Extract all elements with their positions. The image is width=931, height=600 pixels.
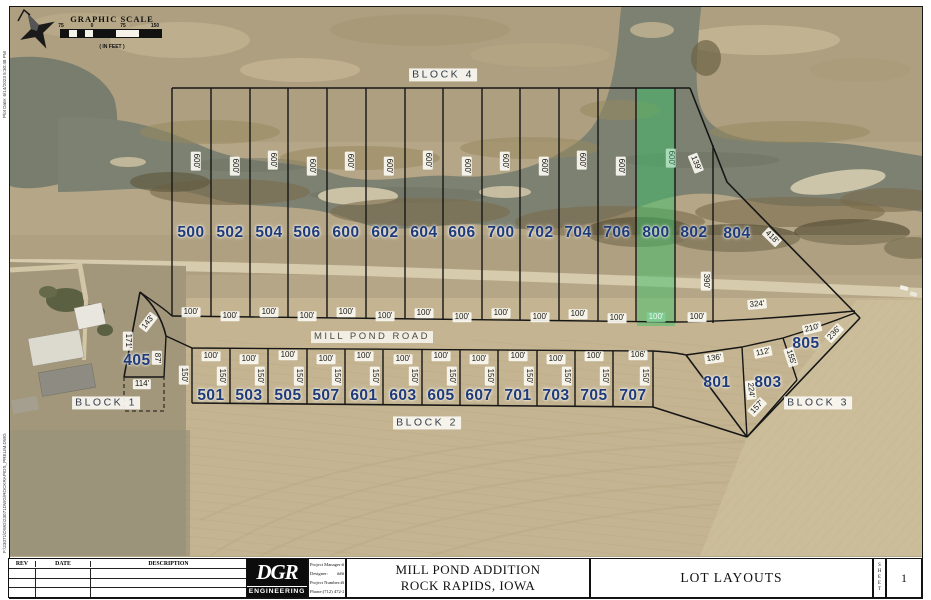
lot-number: 606 (448, 224, 475, 242)
dim-label: 100' (202, 351, 221, 361)
lot-number: 603 (389, 387, 416, 405)
dim-label: 171' (123, 332, 133, 351)
info-value: ### (337, 571, 344, 576)
project-title: MILL POND ADDITION ROCK RAPIDS, IOWA (346, 558, 590, 598)
dim-label: 100' (260, 307, 279, 317)
revision-col-header: REV (9, 561, 36, 567)
plat-sheet: GRAPHIC SCALE 75 0 75 150 ( IN FEET ) Pl… (0, 0, 931, 600)
dim-label: 150' (409, 367, 419, 386)
dim-label: 100' (492, 308, 511, 318)
lot-number: 702 (526, 224, 553, 242)
block-1-label: BLOCK 1 (72, 396, 140, 409)
dim-label: 600' (268, 151, 278, 170)
project-info: Project Manager:### Designer:### Project… (308, 558, 346, 598)
dim-label: 100' (182, 307, 201, 317)
dim-label: 100' (355, 351, 374, 361)
aerial-terrain (10, 0, 931, 557)
lot-number: 706 (603, 224, 630, 242)
info-value: ###### (341, 580, 345, 585)
sheet-title-text: LOT LAYOUTS (680, 570, 782, 586)
dim-label: 600' (384, 157, 394, 176)
info-value: (712) 472-2531 (323, 589, 344, 594)
dim-label: 100' (298, 311, 317, 321)
dim-label: 100' (337, 307, 356, 317)
scale-bar (60, 29, 162, 38)
dim-label: 150' (179, 366, 189, 385)
lot-number: 604 (410, 224, 437, 242)
dim-label: 600' (500, 152, 510, 171)
dim-label: 100' (415, 308, 434, 318)
dim-label: 150' (370, 367, 380, 386)
dim-label: 100' (569, 309, 588, 319)
dim-label: 150' (217, 367, 227, 386)
lot-number: 600 (332, 224, 359, 242)
lot-number: 405 (123, 352, 150, 370)
lot-number: 605 (427, 387, 454, 405)
lot-number: 607 (465, 387, 492, 405)
dim-label: 224' (745, 380, 757, 400)
dim-label: 390' (701, 272, 711, 291)
logo-subtitle: ENGINEERING (247, 586, 307, 597)
dim-label: 150' (640, 367, 650, 386)
scale-units: ( IN FEET ) (99, 44, 124, 50)
dim-label: 600' (191, 152, 201, 171)
dim-label: 600' (616, 157, 626, 176)
dim-label: 150' (485, 367, 495, 386)
revision-col-header: DATE (36, 561, 91, 567)
block-3-label: BLOCK 3 (784, 396, 852, 409)
sheet-number-text: 1 (901, 571, 907, 586)
sheet-word-text: SHEET (877, 563, 882, 593)
dim-label: 100' (279, 350, 298, 360)
revision-row (9, 569, 246, 579)
lot-number: 705 (580, 387, 607, 405)
dim-label: 150' (447, 367, 457, 386)
project-title-line1: MILL POND ADDITION (395, 562, 540, 578)
lot-number-highlighted: 800 (642, 224, 669, 242)
dim-label: 600' (539, 157, 549, 176)
aerial-photo (0, 0, 931, 600)
info-value: ### (342, 562, 344, 567)
info-label: Designer: (310, 571, 328, 576)
lot-number: 505 (274, 387, 301, 405)
lot-number: 507 (312, 387, 339, 405)
lot-number: 803 (754, 374, 781, 392)
dim-label: 150' (524, 367, 534, 386)
dim-label: 100' (509, 351, 528, 361)
sheet-title: LOT LAYOUTS (590, 558, 873, 598)
lot-number: 602 (371, 224, 398, 242)
dim-label: 114' (133, 379, 151, 389)
dim-label: 600' (423, 151, 433, 170)
dim-label: 100' (432, 351, 451, 361)
lot-number: 503 (235, 387, 262, 405)
dim-label: 100' (585, 351, 604, 361)
dim-label: 100' (376, 311, 395, 321)
sheet-number: 1 (886, 558, 922, 598)
sheet-word: SHEET (873, 558, 886, 598)
lot-number: 506 (293, 224, 320, 242)
lot-number: 601 (350, 387, 377, 405)
highlighted-lot-800 (637, 88, 675, 326)
dim-label: 100' (470, 354, 489, 364)
dim-label: 150' (294, 367, 304, 386)
dim-label: 100' (688, 312, 707, 322)
lot-number: 701 (504, 387, 531, 405)
plot-date-note: Plot Date: 6/14/2023 5:30:48 PM (2, 51, 7, 118)
lot-number: 804 (723, 225, 750, 243)
graphic-scale: GRAPHIC SCALE 75 0 75 150 ( IN FEET ) (55, 11, 170, 53)
dim-label: 600' (577, 151, 587, 170)
dim-label: 100' (317, 354, 336, 364)
dim-label: 600' (462, 157, 472, 176)
dim-label: 100' (547, 354, 566, 364)
dim-label: 150' (600, 367, 610, 386)
dim-label: 600' (345, 152, 355, 171)
lot-number: 802 (680, 224, 707, 242)
block-4-label: BLOCK 4 (409, 68, 477, 81)
road-label: MILL POND ROAD (311, 331, 433, 343)
north-arrow-icon (14, 5, 60, 53)
dim-label: 100' (221, 311, 240, 321)
project-title-line2: ROCK RAPIDS, IOWA (401, 578, 536, 594)
lot-number: 801 (703, 374, 730, 392)
dim-label: 150' (255, 367, 265, 386)
lot-number: 700 (487, 224, 514, 242)
block-2-label: BLOCK 2 (393, 416, 461, 429)
file-path-note: F:\23071\DWG\23071DWG\ROCKRAPIDS_PRELIM.… (2, 433, 7, 553)
info-label: Project Number: (310, 580, 341, 585)
dim-label: 150' (332, 367, 342, 386)
lot-number: 501 (197, 387, 224, 405)
lot-number: 805 (792, 335, 819, 353)
revision-col-header: DESCRIPTION (91, 561, 246, 567)
dim-label: 100' (647, 312, 666, 322)
dim-label: 324' (747, 298, 767, 309)
dim-label: 600' (307, 157, 317, 176)
info-label: Phone: (310, 589, 323, 594)
dim-label: 100' (608, 313, 627, 323)
revision-row (9, 579, 246, 589)
dim-label: 600' (230, 157, 240, 176)
dim-label: 87' (152, 351, 162, 365)
lot-number: 502 (216, 224, 243, 242)
dim-label: 150' (562, 367, 572, 386)
graphic-scale-title: GRAPHIC SCALE (70, 14, 154, 24)
dim-label: 100' (531, 312, 550, 322)
lot-number: 703 (542, 387, 569, 405)
dim-label: 100' (240, 354, 259, 364)
dim-label: 100' (453, 312, 472, 322)
info-label: Project Manager: (310, 562, 342, 567)
company-logo: DGR ENGINEERING (246, 558, 308, 598)
dim-label: 106' (629, 350, 648, 360)
logo-text: DGR (256, 562, 297, 583)
lot-number: 504 (255, 224, 282, 242)
revision-table: REV DATE DESCRIPTION (8, 558, 247, 598)
lot-number: 707 (619, 387, 646, 405)
lot-number: 704 (564, 224, 591, 242)
lot-number: 500 (177, 224, 204, 242)
dim-label: 100' (394, 354, 413, 364)
dim-label: 600' (666, 149, 676, 168)
revision-row (9, 588, 246, 597)
